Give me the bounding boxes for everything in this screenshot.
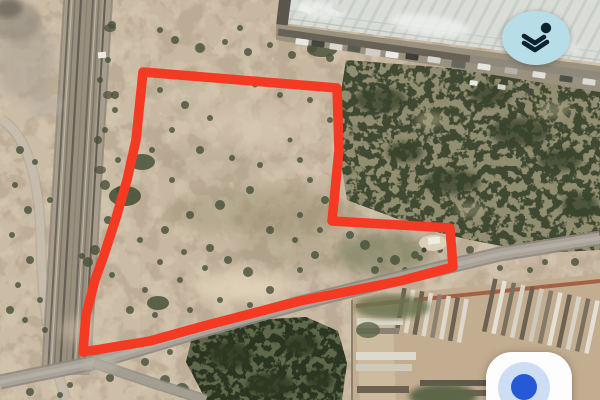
layers-button-background — [502, 11, 570, 65]
map-layers-button[interactable] — [500, 9, 572, 67]
my-location-button[interactable] — [484, 350, 574, 400]
map-canvas[interactable] — [0, 0, 600, 400]
map-layers-icon-dot — [541, 23, 551, 33]
